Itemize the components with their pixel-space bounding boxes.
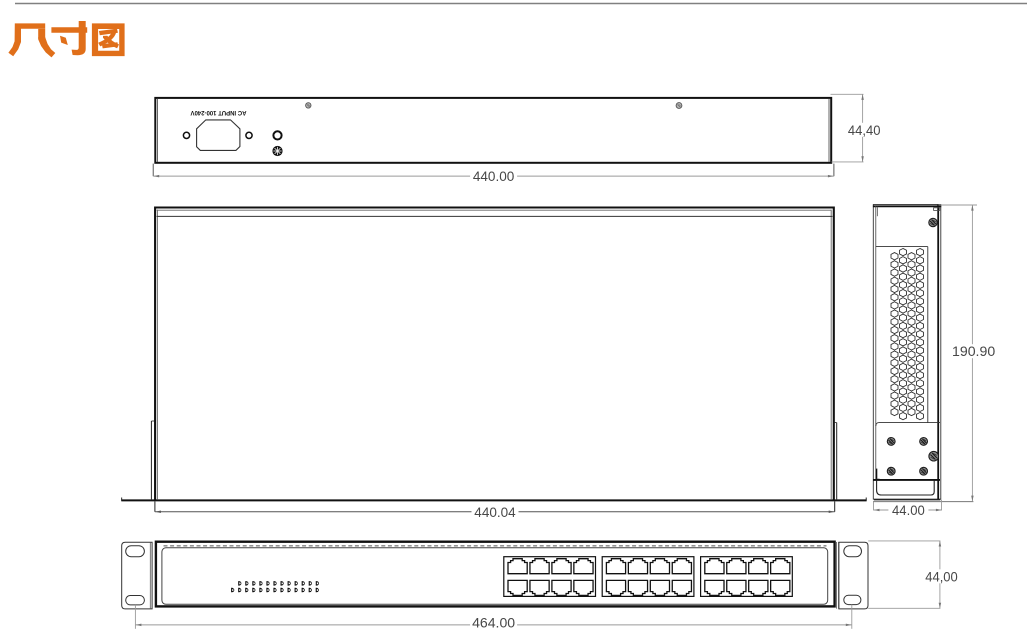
svg-text:464.00: 464.00: [472, 615, 515, 631]
svg-text:AC INPUT 100-240V: AC INPUT 100-240V: [190, 109, 247, 116]
svg-text:190.90: 190.90: [952, 343, 995, 359]
svg-text:440.00: 440.00: [473, 168, 515, 184]
svg-text:44.00: 44.00: [892, 502, 925, 518]
svg-text:440.04: 440.04: [474, 504, 516, 520]
svg-text:44,00: 44,00: [925, 568, 958, 584]
svg-text:44,40: 44,40: [848, 122, 881, 138]
